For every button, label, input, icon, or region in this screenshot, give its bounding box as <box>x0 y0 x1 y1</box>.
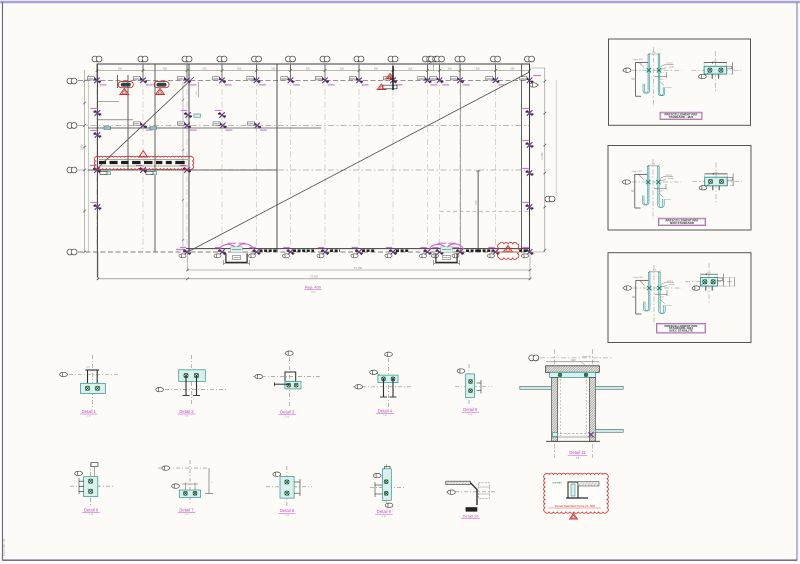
svg-text:500: 500 <box>476 67 481 70</box>
svg-text:1100: 1100 <box>570 359 576 362</box>
svg-text:500: 500 <box>511 67 516 70</box>
svg-text:Detail 5: Detail 5 <box>463 407 478 412</box>
svg-text:platine: platine <box>667 62 674 65</box>
svg-text:PLAN 400 - A0: PLAN 400 - A0 <box>2 538 6 556</box>
svg-text:500: 500 <box>203 67 208 70</box>
svg-text:crosse: crosse <box>666 304 673 307</box>
svg-text:500: 500 <box>306 67 311 70</box>
svg-text:1:100: 1:100 <box>310 292 316 294</box>
svg-text:2500: 2500 <box>81 144 84 150</box>
svg-text:calage: calage <box>668 284 675 286</box>
svg-text:Detail 9: Detail 9 <box>377 509 392 514</box>
svg-text:500: 500 <box>163 67 168 70</box>
svg-text:Detail Standard Porte M. 300: Detail Standard Porte M. 300 <box>555 504 595 508</box>
svg-text:500: 500 <box>408 67 413 70</box>
svg-text:STANDARD - M24: STANDARD - M24 <box>669 115 694 119</box>
svg-text:500: 500 <box>374 67 379 70</box>
svg-text:Detail 11: Detail 11 <box>569 450 586 455</box>
svg-text:Detail 2: Detail 2 <box>179 409 194 414</box>
svg-text:platine: platine <box>667 279 674 282</box>
svg-text:Detail 3: Detail 3 <box>280 410 295 415</box>
svg-text:calage: calage <box>668 66 675 68</box>
svg-text:500: 500 <box>237 67 242 70</box>
svg-text:12 250: 12 250 <box>541 152 544 160</box>
svg-text:Detail 8: Detail 8 <box>280 508 295 513</box>
svg-text:4 tiges M24: 4 tiges M24 <box>632 170 644 173</box>
svg-text:crosse: crosse <box>665 198 672 201</box>
svg-text:500: 500 <box>448 67 453 70</box>
svg-text:72 500: 72 500 <box>310 275 318 279</box>
svg-text:500: 500 <box>340 67 345 70</box>
svg-text:Detail 4: Detail 4 <box>378 408 393 413</box>
svg-text:3000: 3000 <box>476 199 478 205</box>
svg-text:voir plan: voir plan <box>552 482 562 485</box>
svg-text:calage 40: calage 40 <box>581 356 591 358</box>
svg-text:Detail 6: Detail 6 <box>84 507 99 512</box>
svg-text:calage: calage <box>667 178 674 180</box>
svg-text:platine: platine <box>666 173 673 176</box>
svg-text:4 tiges M24: 4 tiges M24 <box>633 276 645 279</box>
svg-text:500: 500 <box>118 67 123 70</box>
svg-text:AVEC STABILITE: AVEC STABILITE <box>669 329 693 333</box>
svg-text:57 150: 57 150 <box>354 266 362 270</box>
svg-text:Detail 7: Detail 7 <box>179 507 194 512</box>
svg-text:Rep. 400: Rep. 400 <box>305 285 322 290</box>
svg-text:Detail 1: Detail 1 <box>82 409 97 414</box>
svg-text:4 tiges M24: 4 tiges M24 <box>632 58 644 61</box>
svg-text:Detail 10: Detail 10 <box>463 514 480 519</box>
svg-text:500: 500 <box>272 67 277 70</box>
svg-text:crosse: crosse <box>666 86 673 89</box>
svg-text:NON STANDARD: NON STANDARD <box>670 221 694 225</box>
